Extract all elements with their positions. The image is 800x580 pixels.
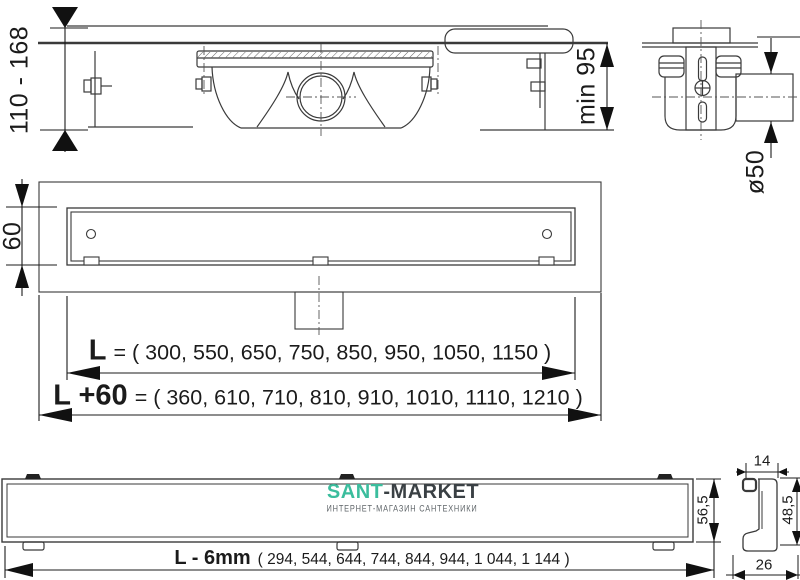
dim-body-height <box>696 479 721 578</box>
brand-name-secondary: -MARKET <box>383 481 479 503</box>
side-view <box>38 26 614 136</box>
dim-body-height-label: 56,5 <box>696 495 711 524</box>
dim-length-label: L = ( 300, 550, 650, 750, 850, 950, 1050… <box>89 337 551 366</box>
dim-channel-width-label: 60 <box>1 222 26 251</box>
watermark-logo: SANT-MARKET <box>327 482 479 502</box>
dim-grate-length-label: L - 6mm ( 294, 544, 644, 744, 844, 944, … <box>174 548 569 568</box>
length-values: = ( 300, 550, 650, 750, 850, 950, 1050, … <box>114 343 552 365</box>
length-flange-values: = ( 360, 610, 710, 810, 910, 1010, 1110,… <box>135 388 583 410</box>
dim-profile-height-label: 48,5 <box>781 495 796 524</box>
end-view <box>642 20 800 140</box>
dim-profile-top-width-label: 14 <box>754 454 771 469</box>
grate-length-values: ( 294, 544, 644, 744, 844, 944, 1 044, 1… <box>258 552 570 568</box>
grate-length-symbol: L - 6mm <box>174 548 250 568</box>
length-flange-symbol: L +60 <box>53 382 127 411</box>
length-symbol: L <box>89 337 107 366</box>
dim-min-depth-label: min 95 <box>575 47 600 125</box>
dim-outlet-diameter-label: ø50 <box>744 150 769 195</box>
watermark-tagline: ИНТЕРНЕТ-МАГАЗИН САНТЕХНИКИ <box>327 505 478 514</box>
dim-length-flange-label: L +60 = ( 360, 610, 710, 810, 910, 1010,… <box>53 382 583 411</box>
dim-min-depth <box>600 43 614 130</box>
brand-name-primary: SANT <box>327 481 383 503</box>
dim-profile-base-width-label: 26 <box>756 558 773 573</box>
technical-drawing: 110 - 168 min 95 ø50 60 L = ( 300, 550, … <box>0 0 800 580</box>
dim-height-range-label: 110 - 168 <box>8 26 33 134</box>
dim-height-range <box>40 7 88 152</box>
top-view <box>39 182 601 335</box>
profile-section <box>743 479 777 551</box>
